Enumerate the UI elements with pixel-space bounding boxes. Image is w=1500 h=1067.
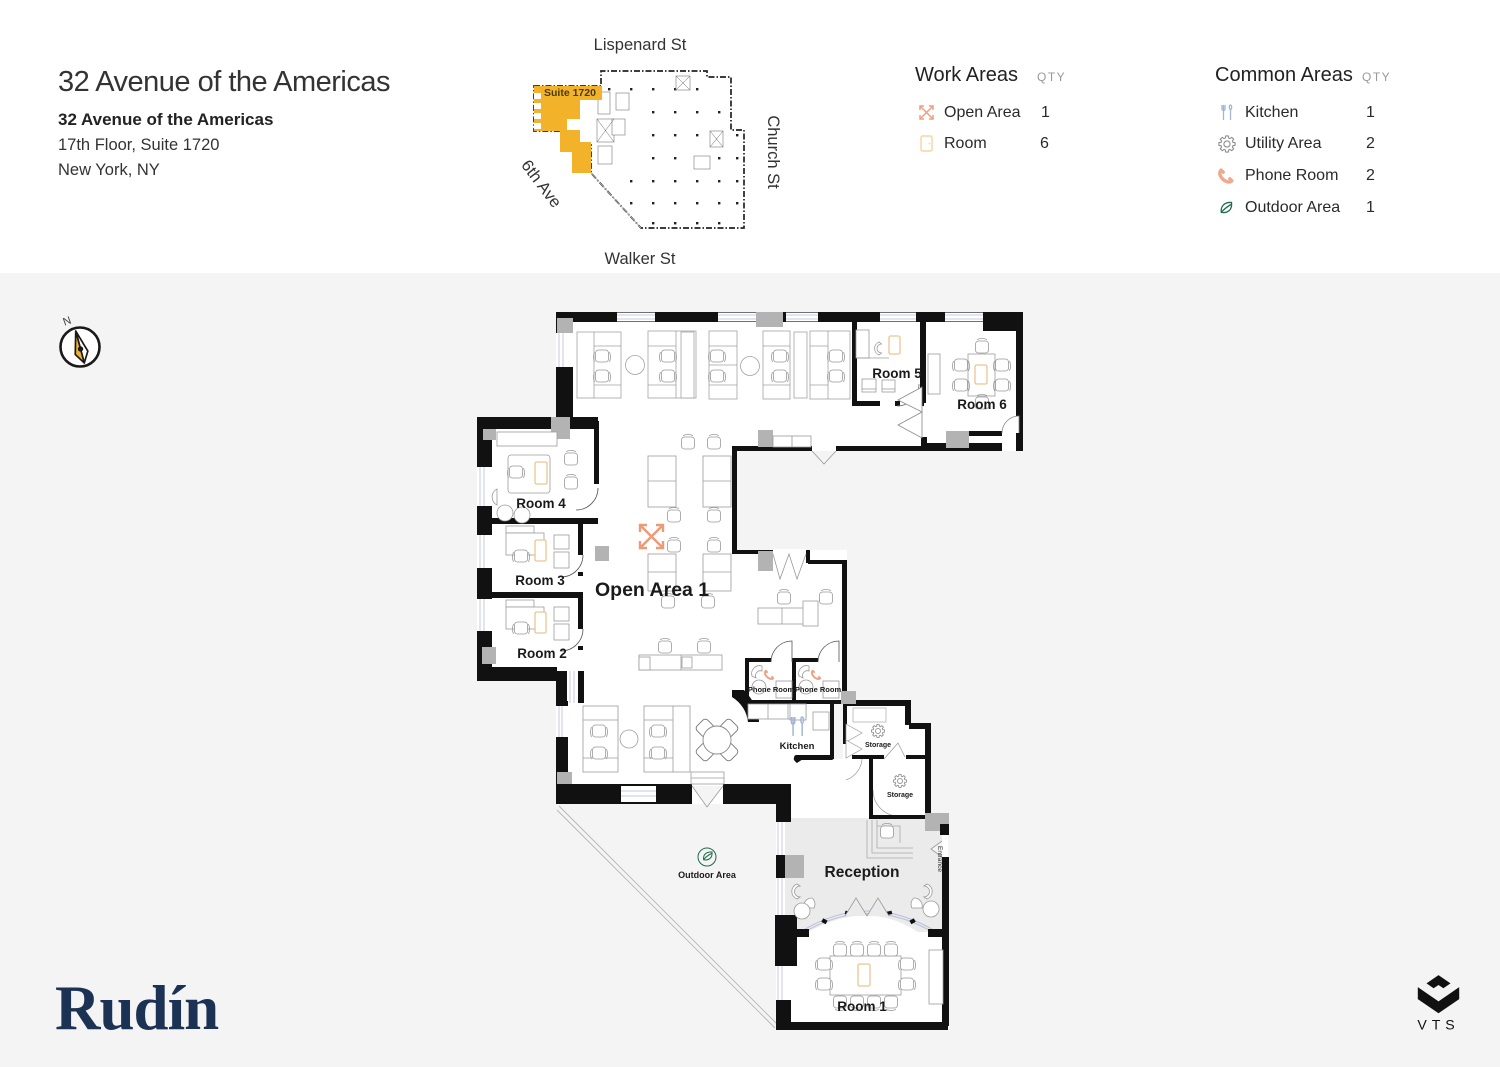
svg-text:Outdoor Area: Outdoor Area — [678, 870, 737, 880]
svg-text:Phone Room: Phone Room — [795, 685, 842, 694]
svg-text:Reception: Reception — [825, 864, 900, 881]
svg-text:Kitchen: Kitchen — [780, 741, 815, 752]
svg-text:Room 5: Room 5 — [872, 366, 922, 381]
svg-text:Open Area 1: Open Area 1 — [595, 579, 709, 601]
svg-text:VTS: VTS — [1417, 1018, 1459, 1034]
svg-text:Storage: Storage — [887, 792, 913, 799]
svg-text:Lispenard St: Lispenard St — [594, 36, 687, 54]
svg-text:6th Ave: 6th Ave — [517, 157, 564, 212]
svg-text:Walker St: Walker St — [605, 250, 676, 268]
svg-text:Suite 1720: Suite 1720 — [544, 87, 596, 99]
svg-text:N: N — [61, 315, 73, 329]
svg-text:Storage: Storage — [865, 742, 891, 749]
svg-text:Room 2: Room 2 — [517, 646, 567, 661]
svg-text:Phone Room: Phone Room — [748, 685, 795, 694]
svg-text:Room 6: Room 6 — [957, 397, 1007, 412]
svg-text:Entrance: Entrance — [936, 846, 943, 872]
svg-text:Room 4: Room 4 — [516, 496, 566, 511]
svg-text:Room 1: Room 1 — [837, 999, 887, 1014]
svg-text:Room 3: Room 3 — [515, 573, 565, 588]
svg-text:Church St: Church St — [764, 115, 782, 189]
